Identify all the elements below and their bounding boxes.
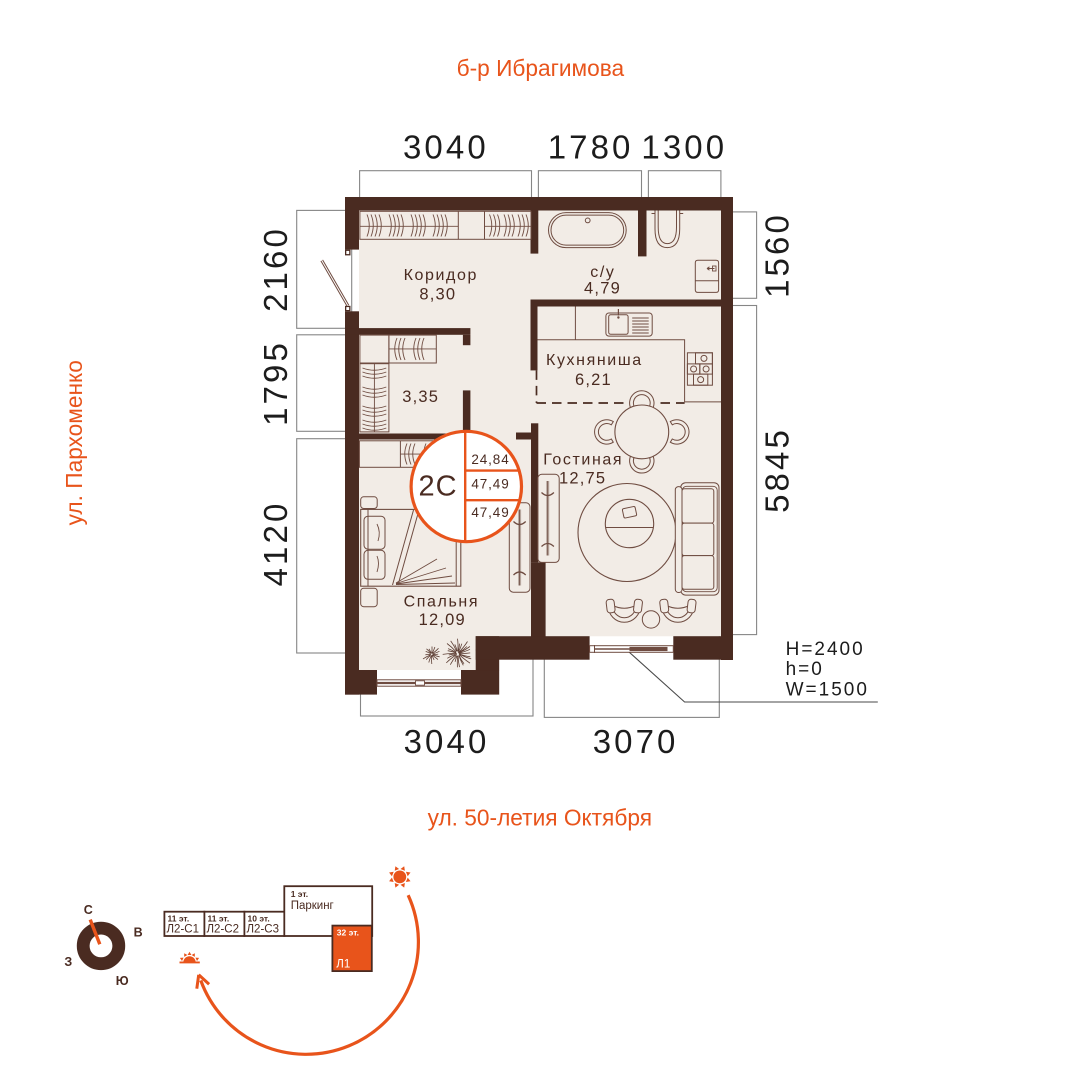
svg-text:1795: 1795: [257, 340, 294, 426]
svg-text:4120: 4120: [257, 501, 294, 587]
svg-text:Л2-С2: Л2-С2: [207, 924, 239, 936]
svg-text:24,84: 24,84: [471, 452, 509, 467]
svg-text:2160: 2160: [257, 226, 294, 312]
svg-text:11 эт.: 11 эт.: [168, 913, 190, 923]
svg-text:Паркинг: Паркинг: [291, 900, 334, 912]
svg-text:12,09: 12,09: [419, 611, 466, 629]
svg-text:С: С: [84, 903, 93, 917]
svg-text:Л1: Л1: [336, 958, 350, 970]
svg-text:1300: 1300: [641, 128, 727, 165]
svg-text:12,75: 12,75: [559, 469, 606, 487]
svg-text:ул. 50-летия Октября: ул. 50-летия Октября: [428, 805, 652, 831]
svg-text:Спальня: Спальня: [404, 594, 480, 611]
svg-text:Кухняниша: Кухняниша: [546, 352, 643, 369]
svg-text:1780: 1780: [548, 128, 634, 165]
svg-text:4,79: 4,79: [584, 279, 621, 297]
svg-text:47,49: 47,49: [471, 505, 509, 520]
svg-text:1 эт.: 1 эт.: [291, 889, 308, 899]
svg-text:8,30: 8,30: [419, 285, 456, 303]
svg-text:h=0: h=0: [786, 659, 824, 680]
svg-text:б-р Ибрагимова: б-р Ибрагимова: [457, 55, 625, 81]
svg-text:W=1500: W=1500: [786, 679, 869, 700]
svg-text:В: В: [134, 926, 143, 940]
svg-text:11 эт.: 11 эт.: [208, 913, 230, 923]
svg-text:Л2-С3: Л2-С3: [247, 924, 279, 936]
svg-text:ул. Пархоменко: ул. Пархоменко: [61, 360, 87, 525]
svg-text:Ю: Ю: [116, 974, 129, 988]
svg-text:Коридор: Коридор: [404, 267, 478, 284]
svg-text:Л2-С1: Л2-С1: [167, 924, 199, 936]
svg-text:5845: 5845: [758, 427, 795, 513]
svg-text:2С: 2С: [418, 471, 457, 503]
svg-text:Гостиная: Гостиная: [543, 452, 623, 469]
svg-text:47,49: 47,49: [471, 477, 509, 492]
svg-text:З: З: [64, 955, 72, 969]
svg-text:3070: 3070: [593, 723, 679, 760]
svg-text:10 эт.: 10 эт.: [248, 913, 270, 923]
svg-text:1560: 1560: [758, 212, 795, 298]
svg-text:32 эт.: 32 эт.: [337, 928, 359, 938]
svg-text:3040: 3040: [404, 723, 490, 760]
svg-text:H=2400: H=2400: [786, 639, 865, 660]
svg-text:6,21: 6,21: [575, 371, 612, 389]
svg-text:3,35: 3,35: [402, 388, 439, 406]
svg-text:3040: 3040: [403, 128, 489, 165]
